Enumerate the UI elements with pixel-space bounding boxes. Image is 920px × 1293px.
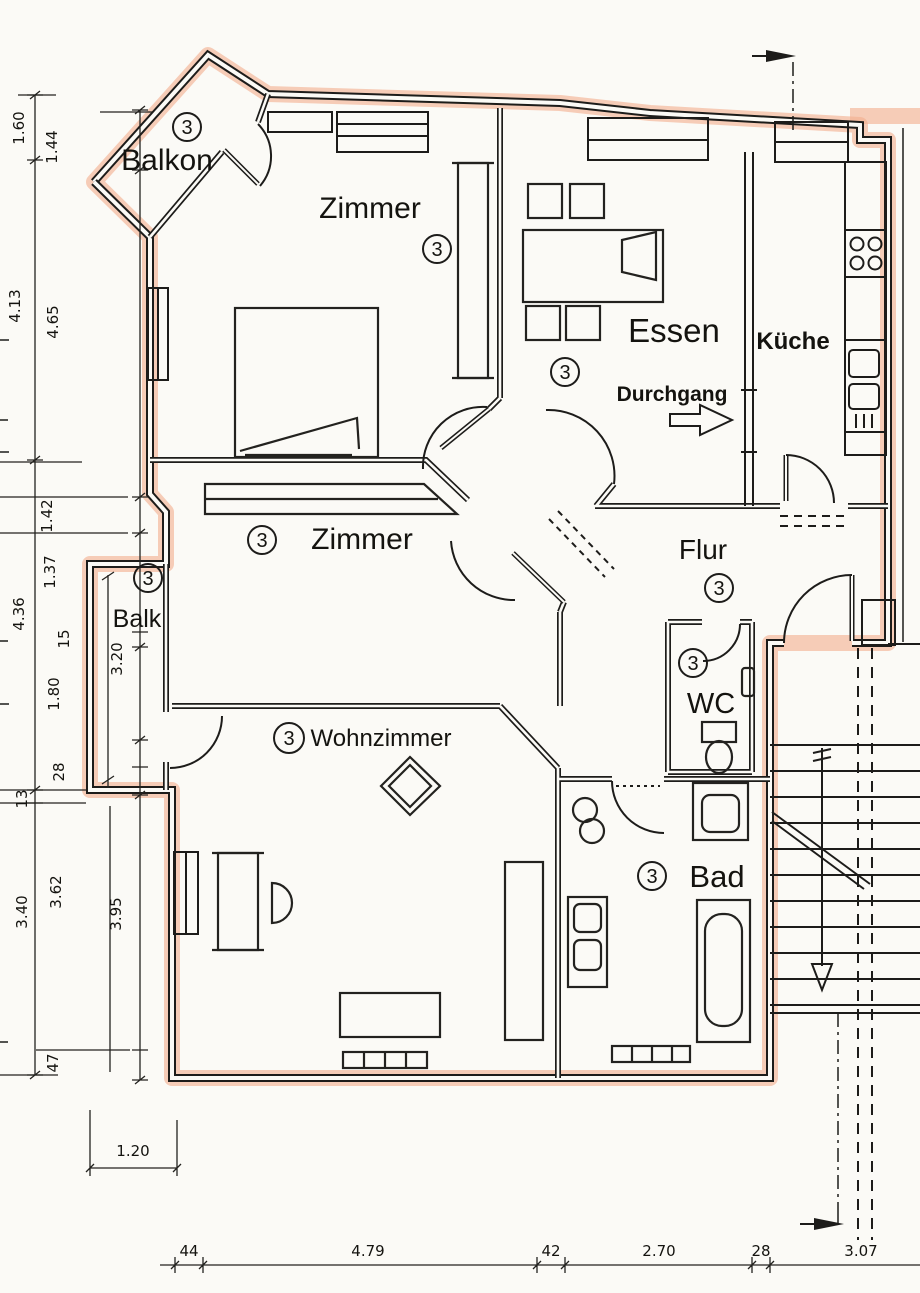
unit-badge: 3 (687, 653, 698, 675)
chair-angled (622, 232, 656, 280)
dim-label: 42 (541, 1242, 560, 1260)
window-radiator-niche (337, 112, 428, 152)
furniture-zimmer-mid (205, 484, 457, 514)
kitchen-counter (845, 162, 886, 455)
unit-badge: 3 (646, 866, 657, 888)
stove-burner (869, 257, 882, 270)
kitchen-sink-2 (849, 384, 879, 409)
unit-badge: 3 (142, 568, 153, 590)
desk-chair (272, 883, 292, 923)
dim-label: 44 (179, 1242, 198, 1260)
dimension-chains (0, 91, 920, 1273)
chair (526, 306, 560, 340)
dimension-labels: 1.60 1.44 4.13 4.65 1.42 1.37 4.36 15 1.… (6, 111, 878, 1260)
room-label-bad: Bad (689, 859, 744, 894)
dim-120-line (86, 1160, 181, 1176)
outer-walls (90, 55, 903, 1078)
shower-tray (702, 795, 739, 832)
dim-label-balk: 3.20 (108, 642, 126, 675)
shaft-dashed-lines (858, 648, 872, 1240)
dim-label: 28 (751, 1242, 770, 1260)
kitchen-partition-wall (741, 152, 757, 506)
bed-blanket (240, 418, 359, 455)
sofa-table (340, 993, 440, 1037)
cabinet (505, 862, 543, 1040)
dim-label: 3.62 (47, 875, 65, 908)
wash-basin (580, 819, 604, 843)
unit-badge: 3 (559, 362, 570, 384)
dim-label: 47 (44, 1053, 62, 1072)
toilet-tank (702, 722, 736, 742)
unit-badge: 3 (431, 239, 442, 261)
stove-burner (851, 238, 864, 251)
dining-table (523, 230, 663, 302)
room-label-balk: Balk (113, 605, 162, 633)
wardrobe (458, 163, 488, 378)
furniture-wc (702, 668, 754, 773)
room-label-flur: Flur (679, 534, 727, 565)
room-label-zimmer-mid: Zimmer (311, 523, 413, 556)
scanned-floor-plan: 1.60 1.44 4.13 4.65 1.42 1.37 4.36 15 1.… (0, 0, 920, 1293)
stove-burner (851, 257, 864, 270)
dim-label: 1.60 (10, 111, 28, 144)
section-arrow-bottom (800, 1213, 844, 1230)
stairs (770, 600, 920, 1240)
bed (235, 308, 378, 457)
furniture-wohnzimmer (212, 757, 543, 1068)
furniture-bad (568, 783, 750, 1062)
dim-label: 1.80 (45, 677, 63, 710)
room-label-balkon: Balkon (121, 144, 213, 177)
unit-badge: 3 (181, 117, 192, 139)
entrance-opening-dashed (780, 516, 848, 526)
furniture-kueche (845, 162, 886, 455)
dim-label: 15 (55, 629, 73, 648)
dim-label: 1.37 (41, 555, 59, 588)
dim-label: 4.13 (6, 289, 24, 322)
window-niche (268, 112, 332, 132)
scan-marks (0, 340, 9, 1042)
stove-burner (869, 238, 882, 251)
dim-label: 4.36 (10, 597, 28, 630)
dim-label-wohnzimmer: 3.95 (107, 897, 125, 930)
unit-badge: 3 (713, 578, 724, 600)
annotation-durchgang: Durchgang (617, 383, 728, 406)
room-label-wc: WC (687, 688, 735, 720)
dim-label: 3.07 (844, 1242, 877, 1260)
dim-label: 28 (50, 762, 68, 781)
chair (570, 184, 604, 218)
stairs-down-arrow (812, 964, 832, 990)
chair (528, 184, 562, 218)
bathtub-inner (705, 914, 742, 1026)
chair (566, 306, 600, 340)
durchgang-arrow (670, 405, 732, 435)
dim-label: 13 (13, 789, 31, 808)
desk (218, 853, 258, 950)
dim-label: 2.70 (642, 1242, 675, 1260)
room-label-wohnzimmer: Wohnzimmer (311, 725, 452, 752)
dim-label: 1.42 (38, 499, 56, 532)
room-label-essen: Essen (628, 312, 720, 349)
toilet-bowl (706, 741, 732, 773)
dim-label: 3.40 (13, 895, 31, 928)
kitchen-sink (849, 350, 879, 377)
floor-plan-drawing: 1.60 1.44 4.13 4.65 1.42 1.37 4.36 15 1.… (0, 0, 920, 1293)
dim-label-120: 1.20 (116, 1142, 149, 1160)
dim-label: 4.65 (44, 305, 62, 338)
unit-badge: 3 (256, 530, 267, 552)
dim-label: 4.79 (351, 1242, 384, 1260)
room-label-kueche: Küche (756, 328, 829, 355)
unit-badge: 3 (283, 728, 294, 750)
dim-label: 1.44 (43, 130, 61, 163)
hidden-door-dashed (549, 511, 614, 577)
room-label-zimmer-top: Zimmer (319, 192, 421, 225)
